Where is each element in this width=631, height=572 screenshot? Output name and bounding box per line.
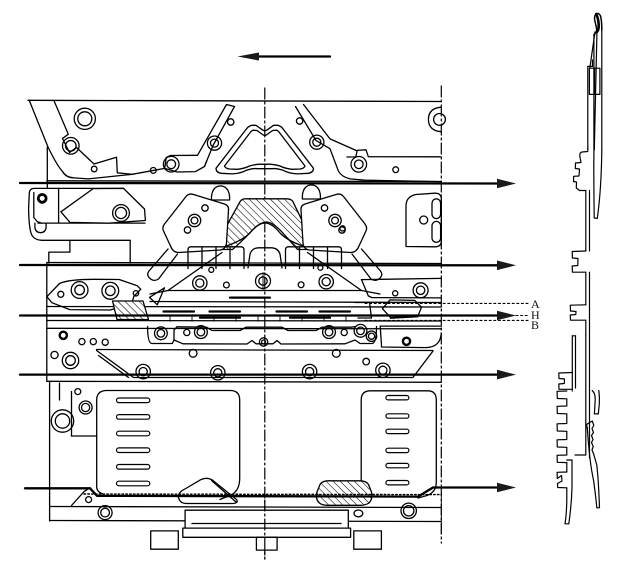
- svg-text:B: B: [531, 318, 539, 332]
